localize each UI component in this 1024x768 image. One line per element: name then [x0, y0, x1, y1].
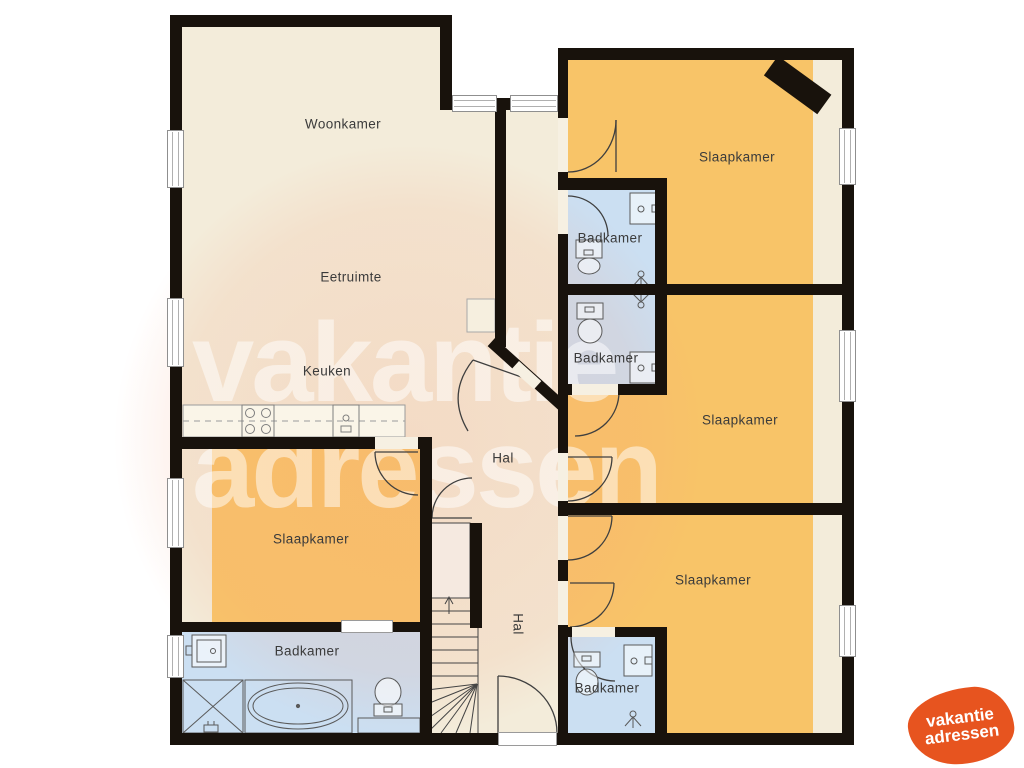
wall-step [440, 15, 452, 110]
wall-top-left [170, 15, 452, 27]
label-woonkamer: Woonkamer [305, 117, 381, 132]
label-eetruimte: Eetruimte [320, 270, 381, 285]
opening-slaapkamer-tr [558, 118, 568, 172]
label-badkamer-bottomleft: Badkamer [275, 644, 340, 659]
label-slaapkamer-midright: Slaapkamer [702, 413, 778, 428]
label-badkamer-midright: Badkamer [574, 351, 639, 366]
floor-kitchen-pocket [432, 347, 508, 443]
opening-slaapkamer-br-b [558, 581, 568, 625]
window-right-2 [839, 330, 856, 402]
label-keuken: Keuken [303, 364, 351, 379]
window-left-2 [167, 298, 184, 367]
window-right-1 [839, 128, 856, 185]
logo-text: vakantie adressen [904, 682, 1018, 768]
label-slaapkamer-topright: Slaapkamer [699, 150, 775, 165]
window-left-4 [167, 635, 184, 678]
wall-bathroom1-top [558, 178, 667, 190]
opening-slaapkamer-br-a [558, 516, 568, 560]
opening-front-door [498, 732, 557, 746]
label-badkamer-topright: Badkamer [578, 231, 643, 246]
wall-bedroom-bl-right [420, 437, 432, 733]
label-badkamer-bottomright: Badkamer [575, 681, 640, 696]
opening-badkamer-tr [558, 190, 568, 234]
wall-bedroom-tr-divider [655, 284, 854, 295]
opening-badkamer-br [572, 627, 615, 637]
opening-slaapkamer-mr [558, 453, 568, 501]
label-slaapkamer-bottomleft: Slaapkamer [273, 532, 349, 547]
floor-plan: vakantie adressen [0, 0, 1024, 768]
opening-badkamer-mr [572, 384, 618, 395]
opening-badkamer-bl [341, 620, 393, 633]
room-fill-slaapkamer-bottomright-b [667, 633, 813, 733]
room-fill-badkamer-midright [568, 295, 655, 384]
wall-bedroom-mid-divider [568, 503, 854, 515]
opening-slaapkamer-bl [375, 437, 418, 449]
wall-dining-right [495, 108, 506, 347]
label-hal: Hal [492, 451, 513, 466]
wall-stair-closet [470, 523, 482, 628]
label-hal-vertical: Hal [511, 613, 526, 634]
floor-hal [430, 443, 560, 733]
window-left-3 [167, 478, 184, 548]
wall-top-right [558, 48, 854, 60]
room-fill-slaapkamer-midright-b [568, 395, 813, 503]
window-left-1 [167, 130, 184, 188]
wall-bathroom3-right [655, 627, 667, 733]
label-slaapkamer-bottomright: Slaapkamer [675, 573, 751, 588]
window-right-3 [839, 605, 856, 657]
window-top-2 [510, 95, 558, 112]
window-top-1 [452, 95, 497, 112]
floor-livingarea [182, 27, 440, 443]
wall-bathroom-divider [558, 284, 667, 295]
vakantieadressen-logo: vakantie adressen [908, 688, 1014, 764]
